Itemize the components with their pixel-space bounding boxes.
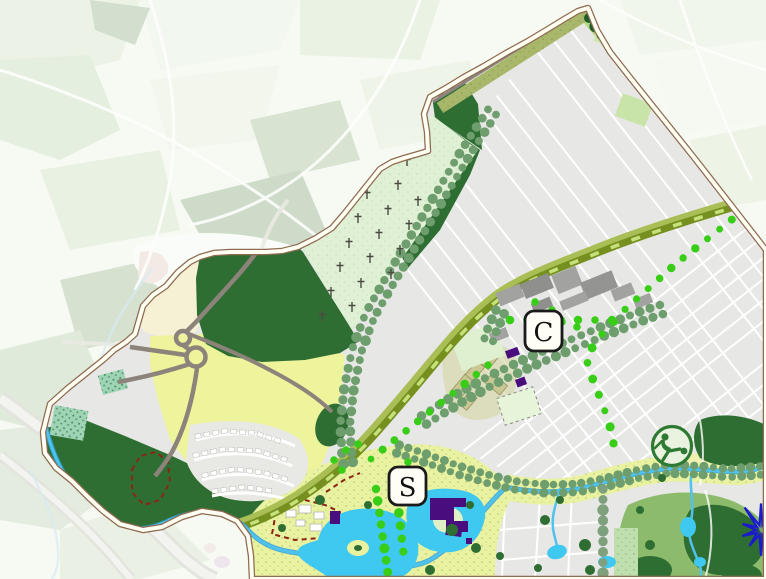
- centre-marker-label: C: [534, 318, 554, 348]
- estate-marker-label: S: [399, 473, 417, 503]
- sports-icon: [653, 427, 692, 466]
- pond-3: [680, 517, 696, 537]
- forest-northeast-stream: [694, 415, 766, 466]
- ball-icon: [681, 448, 688, 455]
- estate-marker[interactable]: S: [389, 467, 426, 505]
- planning-map: C S: [0, 0, 766, 579]
- heath-texture-1: [50, 405, 89, 440]
- lake-island-tree: [354, 545, 362, 551]
- centre-marker[interactable]: C: [525, 311, 562, 351]
- pond-4: [694, 557, 706, 567]
- allotment-stipple: [614, 528, 638, 576]
- map-canvas: C S: [0, 0, 766, 579]
